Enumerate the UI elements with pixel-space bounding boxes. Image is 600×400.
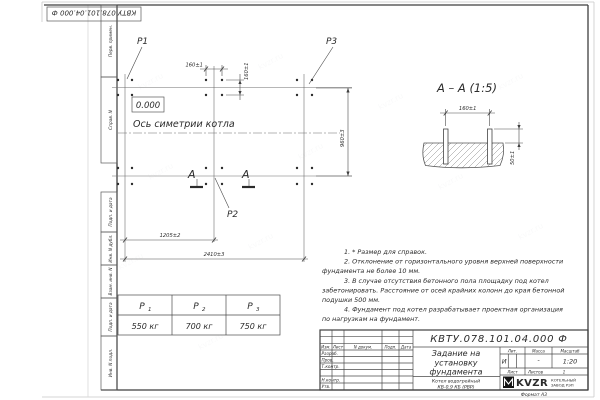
label-p2: P2 [227, 210, 238, 220]
label-p3: P3 [326, 37, 337, 47]
watermark-text: kvzr.ru [257, 51, 285, 72]
doc-title-line: установку [433, 359, 477, 368]
note-line: 1. * Размер для справок. [344, 248, 427, 256]
table-header-p1: Р [139, 302, 145, 312]
table-value-p2: 700 кг [186, 322, 214, 331]
margin-label: Инв. N подл. [108, 349, 114, 377]
format-label: Формат А3 [521, 392, 547, 398]
dim-bolt-spacing: 160±1 [440, 106, 495, 126]
dim-text: 960±3 [340, 129, 346, 147]
drawing-sheet: kvzr.ru kvzr.ru kvzr.ru kvzr.ru kvzr.ru … [0, 0, 600, 400]
margin-label: Подп. и дата [108, 197, 114, 227]
watermark-text: kvzr.ru [517, 221, 545, 242]
section-view-title: А – А (1:5) [436, 81, 497, 95]
watermark-text: kvzr.ru [497, 71, 525, 92]
scale-header: Масштаб [560, 348, 580, 353]
watermark-text: kvzr.ru [297, 141, 325, 162]
elevation-value: 0.000 [136, 101, 160, 111]
watermark-text: kvzr.ru [247, 231, 275, 252]
document-designation: КВТУ.078.101.04.000 Ф [430, 334, 567, 345]
company-name-line: ЗАВОД РЭП [551, 383, 574, 388]
anchor-bolt-points [117, 79, 313, 185]
note-line: 4. Фундамент под котел разрабатывает про… [344, 306, 563, 314]
dim-text: 160±1 [185, 63, 203, 69]
dim-text: 160±1 [459, 106, 477, 112]
top-designation-text: КВТУ.078.101.04.000 Ф [52, 9, 136, 17]
sheet-header: Лист [506, 369, 518, 374]
symmetry-axis-label: Ось симетрии котла [133, 119, 235, 130]
margin-label: Взам. инв. N [108, 267, 114, 296]
kvzr-logo-text: KVZR [516, 378, 548, 389]
doc-title-line: фундамента [430, 368, 483, 377]
table-header-p3: Р [247, 302, 253, 312]
margin-strip: Перв. примен. Справ. N Подп. и дата Инв.… [101, 5, 117, 390]
note-line: забетонировать. Расстояние от осей крайн… [322, 286, 564, 294]
label-p1: P1 [137, 37, 148, 47]
watermark-text: kvzr.ru [437, 171, 465, 192]
watermark-text: kvzr.ru [377, 91, 405, 112]
col-sign: Подп. [384, 345, 396, 350]
watermark-text: kvzr.ru [197, 331, 225, 352]
watermark-text: kvzr.ru [137, 71, 165, 92]
table-header-p2-sub: 2 [202, 307, 206, 313]
dim-text: 50±1 [510, 151, 516, 165]
dim-text: 160±1 [244, 62, 250, 80]
technical-notes: 1. * Размер для справок. 2. Отклонение о… [322, 248, 564, 323]
margin-label: Подп. и дата [108, 302, 114, 332]
col-date: Дата [400, 345, 412, 350]
doc-title-line: Задание на [432, 349, 481, 358]
watermark-text: kvzr.ru [147, 161, 175, 182]
row-developed: Разраб. [322, 351, 338, 356]
elevation-mark: 0.000 [132, 97, 164, 112]
col-list: Лист [332, 345, 344, 350]
row-checked: Пров. [322, 358, 334, 363]
note-line: 3. В случае отсутствия бетонного пола пл… [344, 277, 549, 285]
scale-value: 1:20 [563, 358, 578, 366]
note-line: 2. Отклонение от горизонтального уровня … [344, 258, 563, 266]
table-header-p1-sub: 1 [148, 307, 152, 313]
table-header-p2: Р [193, 302, 199, 312]
note-line: фундамента не более 10 мм. [322, 267, 420, 275]
table-value-p3: 750 кг [240, 322, 268, 331]
lit-header: Лит. [507, 348, 517, 353]
mass-header: Масса [532, 348, 545, 353]
table-value-p1: 550 кг [132, 322, 160, 331]
col-doc: N докум. [354, 345, 373, 350]
title-block: Изм. Лист N докум. Подп. Дата Разраб. Пр… [320, 330, 588, 398]
loads-table: Р 1 Р 2 Р 3 550 кг 700 кг 750 кг [118, 295, 280, 335]
row-ncontrol: Н.контр. [322, 377, 341, 382]
table-header-p3-sub: 3 [256, 307, 260, 313]
dim-text: 1205±2 [160, 233, 181, 239]
product-name-line: КВ-0,9 КБ (РВР) [438, 385, 475, 391]
col-izm: Изм. [321, 345, 330, 350]
watermark-text: kvzr.ru [117, 251, 145, 272]
section-letter: А [241, 168, 250, 181]
dim-text: 2410±3 [204, 252, 225, 258]
row-approved: Утв. [322, 384, 331, 389]
anchor-bolt [488, 129, 493, 164]
dim-bottom-outer: 2410±3 [120, 252, 308, 262]
mass-value: - [537, 357, 540, 365]
anchor-bolt [444, 129, 449, 164]
note-line: подушки 500 мм. [322, 296, 380, 304]
top-designation-stamp: КВТУ.078.101.04.000 Ф [47, 7, 141, 21]
lit-value: И [502, 358, 507, 366]
dim-top-horizontal: 160±1 [185, 63, 228, 77]
section-view-a-a: А – А (1:5) 160±1 50±1 [423, 81, 523, 168]
sheets-header: Листов [527, 369, 544, 374]
dim-right-vertical: 960±3 [316, 88, 352, 176]
row-tcontrol: Т.контр. [322, 364, 340, 369]
margin-label: Инв. N дубл. [108, 234, 114, 262]
company-logo: KVZR КОТЕЛЬНЫЙ ЗАВОД РЭП [503, 377, 576, 390]
product-name-line: Котел водогрейный [432, 379, 480, 385]
dim-bottom-inner: 1205±2 [120, 233, 218, 243]
section-letter: А [187, 168, 196, 181]
note-line: по нагрузкам на фундамент. [322, 315, 420, 323]
margin-label: Перв. примен. [108, 25, 114, 57]
sheets-value: 1 [563, 369, 566, 374]
margin-label: Справ. N [108, 109, 114, 129]
dim-top-vertical: 160±1 [226, 62, 250, 100]
